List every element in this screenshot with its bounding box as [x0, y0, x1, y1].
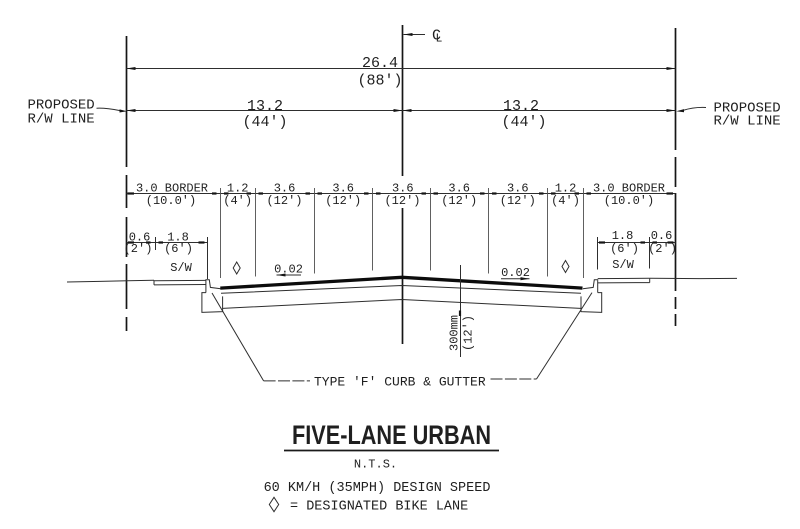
svg-text:R/W LINE: R/W LINE: [28, 112, 95, 128]
svg-text:(12'): (12'): [384, 194, 420, 208]
svg-text:L: L: [436, 33, 443, 46]
svg-text:13.2: 13.2: [247, 98, 283, 115]
svg-text:(2'): (2'): [124, 242, 153, 256]
svg-text:N.T.S.: N.T.S.: [354, 458, 397, 472]
svg-text:(2'): (2'): [648, 242, 677, 256]
svg-text:R/W LINE: R/W LINE: [714, 114, 781, 130]
svg-text:(10.0'): (10.0'): [146, 194, 196, 208]
svg-text:S/W: S/W: [170, 261, 192, 275]
svg-text:26.4: 26.4: [362, 55, 398, 72]
svg-text:(44'): (44'): [501, 114, 546, 131]
svg-text:300mm: 300mm: [448, 315, 462, 351]
svg-text:(12'): (12'): [462, 315, 476, 351]
svg-text:(88'): (88'): [357, 72, 402, 89]
svg-text:(12'): (12'): [325, 194, 361, 208]
svg-text:(6'): (6'): [610, 242, 639, 256]
svg-text:= DESIGNATED BIKE LANE: = DESIGNATED BIKE LANE: [290, 500, 468, 515]
svg-text:(12'): (12'): [500, 194, 536, 208]
svg-text:(4'): (4'): [551, 194, 580, 208]
svg-text:S/W: S/W: [612, 258, 634, 272]
svg-text:13.2: 13.2: [503, 98, 539, 115]
svg-text:(44'): (44'): [242, 114, 287, 131]
svg-text:(6'): (6'): [164, 242, 193, 256]
svg-text:60 KM/H (35MPH) DESIGN SPEED: 60 KM/H (35MPH) DESIGN SPEED: [264, 481, 491, 496]
svg-text:(10.0'): (10.0'): [604, 194, 654, 208]
svg-text:(12'): (12'): [266, 194, 302, 208]
svg-text:FIVE-LANE URBAN: FIVE-LANE URBAN: [292, 420, 491, 450]
svg-text:(12'): (12'): [441, 194, 477, 208]
svg-text:(4'): (4'): [223, 194, 252, 208]
svg-text:TYPE 'F' CURB & GUTTER: TYPE 'F' CURB & GUTTER: [314, 375, 486, 390]
